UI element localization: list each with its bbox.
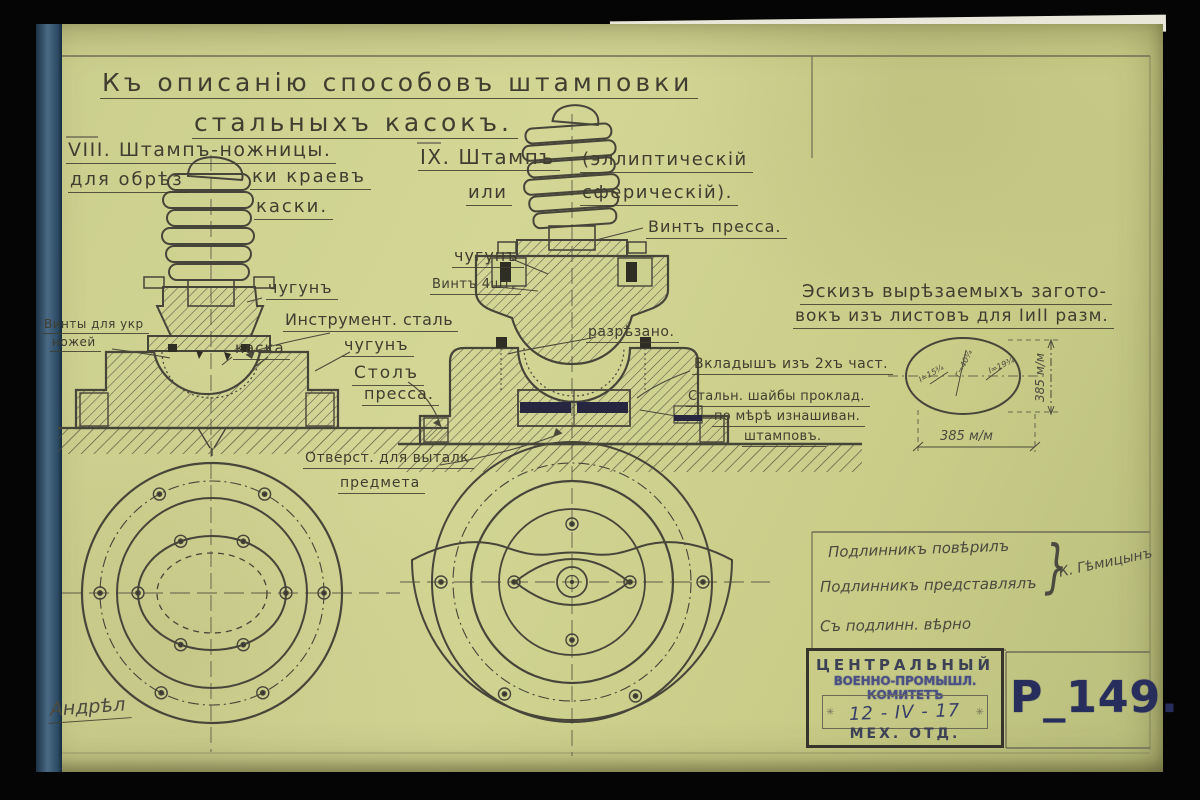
washers-label3: штамповъ. [742,430,826,447]
document-number: Р_149. [1010,672,1179,723]
tool-steel-label: Инструмент. сталь [283,312,458,332]
sheet-title-line2: стальныхъ касокъ. [192,110,518,139]
cut-open-label: разрѣзано. [586,325,679,343]
knife-screws-label1: Винты для укр [42,318,149,334]
cast-iron-label-left2: чугунъ [342,337,414,357]
ejection-hole-label2: предмета [338,476,425,494]
ornament-left-icon: ✳ [826,707,834,718]
stamp-org-line1: ЦЕНТРАЛЬНЫЙ [809,656,1001,674]
press-screw-label: Винтъ пресса. [646,219,787,239]
insert-label: Вкладышъ изъ 2хъ част. [692,357,893,375]
fig9-or: или [466,184,512,206]
blank-sketch-caption2: вокъ изъ листовъ для IиII разм. [793,308,1114,329]
press-table-label1: Столъ [352,365,424,386]
press-table-label2: пресса. [362,386,439,406]
fig9-heading: IX. Штампъ [418,147,560,171]
cast-iron-label-right: чугунъ [452,248,524,268]
ejection-hole-label1: Отверст. для выталк [303,451,474,469]
width-dimension: 385 м/м [940,430,993,444]
knife-screws-label2: ножей [50,336,101,352]
washers-label2: по мѣрѣ изнашиван. [712,410,865,427]
stamp-date: 12 - IV - 17 [849,700,961,725]
stamp-date-box: ✳ 12 - IV - 17 ✳ [822,695,988,729]
sheet-title-line1: Къ описанію способовъ штамповки [100,70,698,99]
fig8-subtitle-part2: ки краевъ [250,168,371,190]
fig9-paren2: сферическій). [580,184,738,206]
stamp-dept: МЕХ. ОТД. [809,726,1001,742]
committee-stamp: ЦЕНТРАЛЬНЫЙ ВОЕННО-ПРОМЫШЛ. КОМИТЕТЪ ✳ 1… [806,648,1004,748]
blank-sketch-caption1: Эскизъ вырѣзаемыхъ загото- [800,283,1112,305]
fig8-heading: VIII. Штампъ-ножницы. [66,141,336,164]
cast-iron-label-left: чугунъ [266,280,338,300]
ornament-right-icon: ✳ [976,707,984,718]
screw-qty-label: Винтъ 4шт. [430,278,521,295]
scanned-drawing-sheet: Къ описанію способовъ штамповки стальных… [0,0,1200,800]
fig8-subtitle-part3: каски. [254,198,333,220]
washers-label1: Стальн. шайбы проклад. [686,390,870,407]
washer-legend-swatch [674,406,702,423]
fig9-paren1: (эллиптическій [580,151,753,173]
height-dimension: 385 м/м [1034,353,1047,402]
fig8-subtitle-part1: для обрѣз [68,171,189,193]
helmet-label: каска [233,341,290,360]
signature-line3: Съ подлинн. вѣрно [820,617,971,635]
